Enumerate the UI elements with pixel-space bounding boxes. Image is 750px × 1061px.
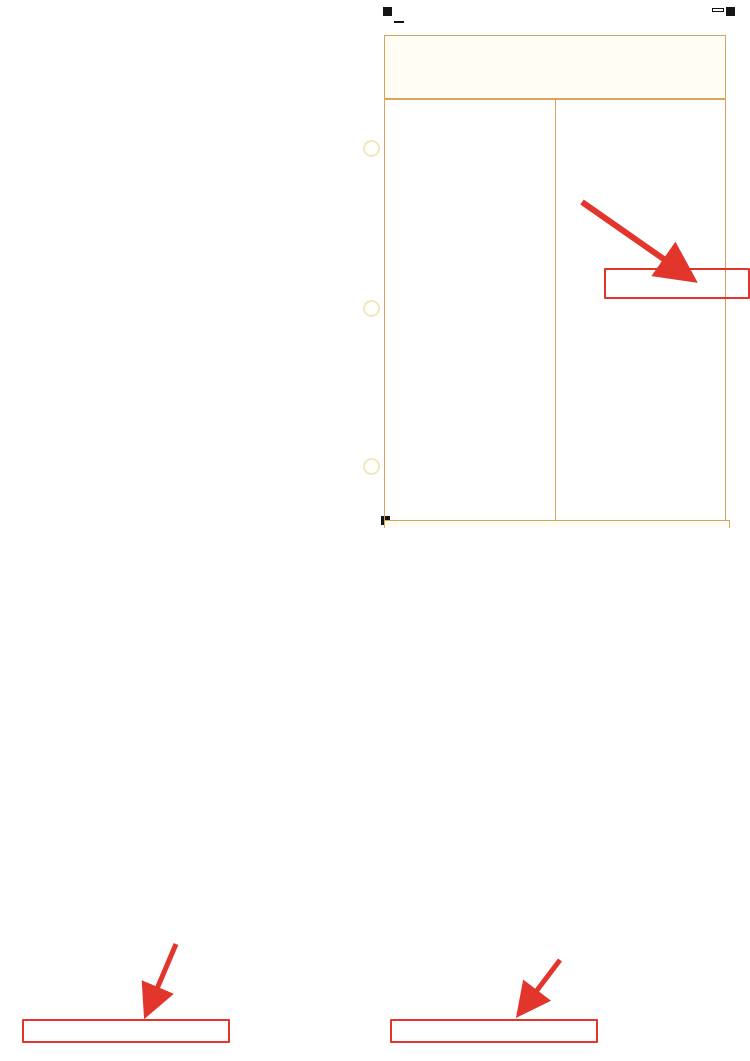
- page: [0, 0, 750, 1061]
- taxpayer-header-block: [384, 35, 726, 99]
- income-main-table: [384, 99, 726, 521]
- highlight-box-general: [22, 1019, 230, 1043]
- income-right-column: [555, 100, 726, 520]
- form-title: [388, 10, 702, 34]
- highlight-box-simple: [390, 1019, 598, 1043]
- form-code: [712, 8, 724, 12]
- punch-hole: [363, 458, 380, 475]
- era-year-box: [394, 21, 404, 23]
- income-left-column: [385, 100, 555, 520]
- highlight-box-income: [604, 268, 750, 299]
- consumption-tax-simple-form: [378, 528, 744, 1059]
- punch-hole: [363, 300, 380, 317]
- punch-hole: [363, 140, 380, 157]
- consumption-tax-general-form: [8, 528, 374, 1059]
